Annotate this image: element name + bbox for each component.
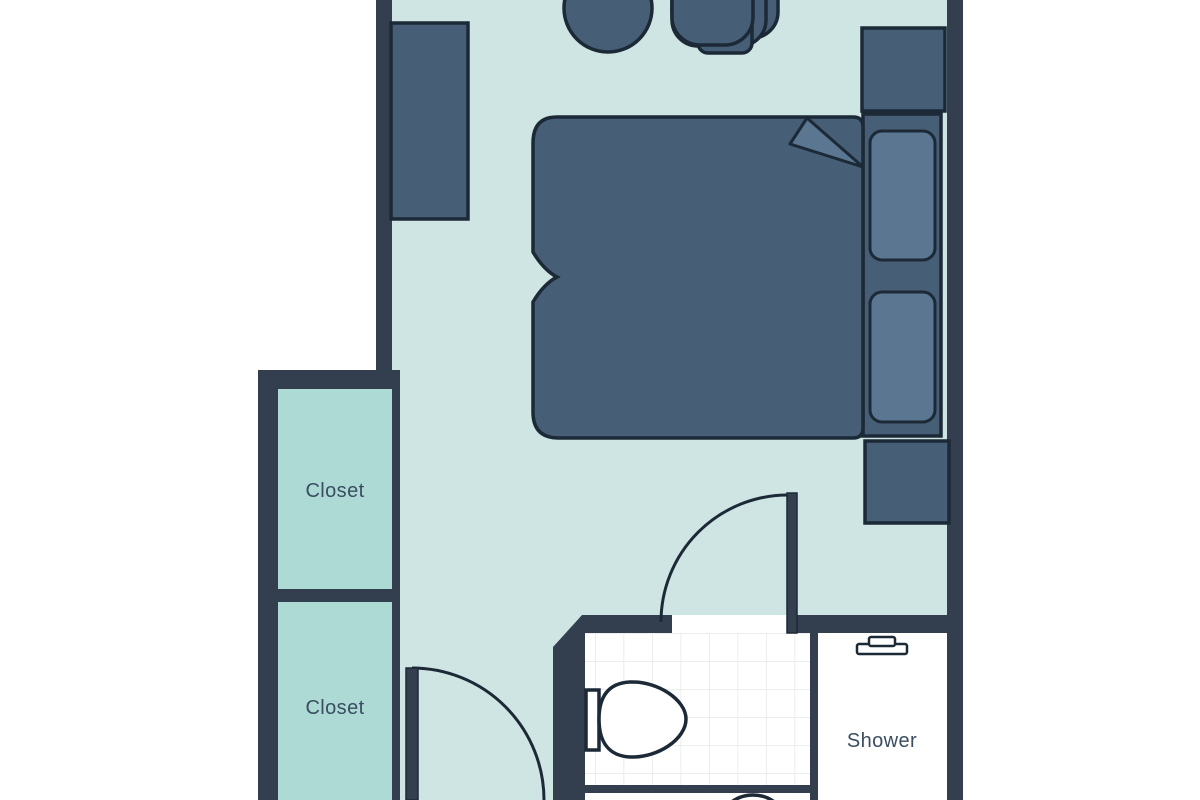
bed-pillow-top [870,131,935,260]
wall-toilet-room-south [585,785,810,793]
shower-label: Shower [847,731,917,751]
dresser [391,23,468,219]
wall-shower-divider [810,633,818,800]
entry-door-leaf [406,668,418,800]
nightstand-bottom [865,441,949,523]
closet-lower-label: Closet [305,698,364,718]
toilet-tank [586,690,599,750]
wall-closet-divider [278,589,400,602]
wall-closet-top [258,370,400,389]
bed-pillow-bottom [870,292,935,422]
closet-upper-label: Closet [305,481,364,501]
floor-plan: Closet Closet Shower [0,0,1200,800]
wall-bathroom-north-right [790,615,947,633]
vanity-nook-floor [585,793,810,800]
wall-closet-outer [258,370,278,800]
shower-floor [818,633,947,800]
floor-plan-canvas [0,0,1200,800]
chair-seat [672,0,753,45]
bed-blanket [533,117,863,438]
bathroom-door-leaf [787,493,797,633]
wall-right [947,0,963,800]
nightstand-top [862,28,945,111]
shower-head-mount-icon [869,637,895,646]
